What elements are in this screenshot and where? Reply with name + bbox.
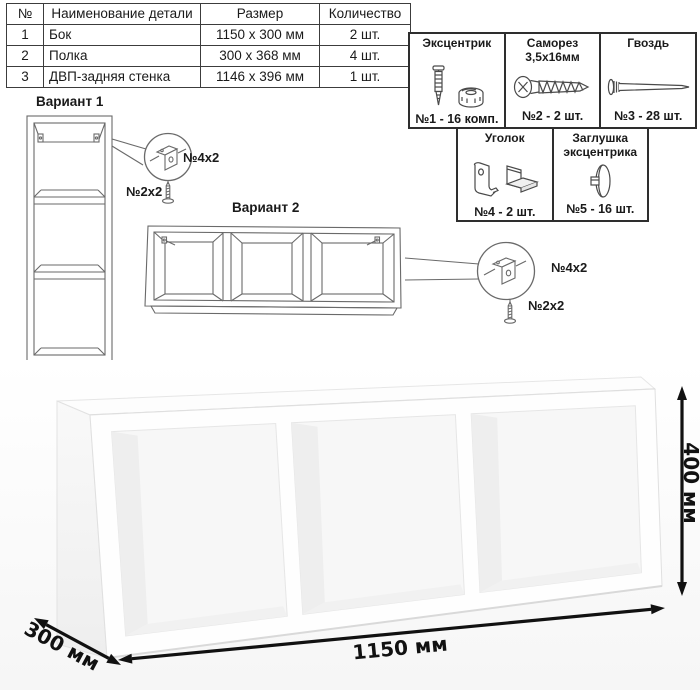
hardware-title: Эксцентрик (420, 34, 493, 64)
hardware-title: Гвоздь (625, 34, 671, 64)
nail-icon (601, 64, 695, 109)
part-name-cell: Бок (44, 25, 201, 46)
part-size-cell: 300 x 368 мм (201, 46, 320, 67)
variant1-bracket-qty-label: №4х2 (183, 150, 219, 165)
assembly-instruction-sheet: № Наименование детали Размер Количество … (0, 0, 700, 690)
col-header-num: № (7, 4, 44, 25)
variant2-bracket-qty-label: №4х2 (551, 260, 587, 275)
table-row: 2 Полка 300 x 368 мм 4 шт. (7, 46, 411, 67)
part-name-cell: ДВП-задняя стенка (44, 67, 201, 88)
part-number-cell: 3 (7, 67, 44, 88)
eccentric-cam-icon (410, 64, 504, 112)
hardware-title: Уголок (483, 129, 527, 159)
variant2-screw-qty-label: №2х2 (528, 298, 564, 313)
hardware-title: Заглушка эксцентрика (554, 129, 648, 160)
hardware-item-nail: Гвоздь №3 - 28 шт. (599, 32, 697, 129)
hardware-item-eccentric: Эксцентрик №1 - 16 (408, 32, 506, 129)
col-header-size: Размер (201, 4, 320, 25)
cam-cover-icon (554, 160, 648, 202)
part-qty-cell: 2 шт. (320, 25, 411, 46)
hardware-title: Саморез 3,5х16мм (506, 34, 600, 65)
hardware-item-corner-bracket: Уголок №4 - 2 шт. (456, 127, 554, 222)
col-header-name: Наименование детали (44, 4, 201, 25)
hardware-box-row-2: Уголок №4 - 2 шт. Заглушка эксцентрика (456, 127, 649, 222)
variant2-label: Вариант 2 (232, 200, 299, 215)
corner-bracket-icon (458, 159, 552, 205)
parts-table-header-row: № Наименование детали Размер Количество (7, 4, 411, 25)
variant1-screw-qty-label: №2х2 (126, 184, 162, 199)
part-qty-cell: 1 шт. (320, 67, 411, 88)
col-header-qty: Количество (320, 4, 411, 25)
part-qty-cell: 4 шт. (320, 46, 411, 67)
hardware-item-screw: Саморез 3,5х16мм №2 - 2 шт. (504, 32, 602, 129)
variant2-drawing (135, 218, 615, 333)
part-name-cell: Полка (44, 46, 201, 67)
part-size-cell: 1146 x 396 мм (201, 67, 320, 88)
hardware-box-row-1: Эксцентрик №1 - 16 (408, 32, 697, 129)
table-row: 3 ДВП-задняя стенка 1146 x 396 мм 1 шт. (7, 67, 411, 88)
part-number-cell: 2 (7, 46, 44, 67)
hardware-count-label: №2 - 2 шт. (522, 109, 583, 127)
height-dimension-label: 400 мм (679, 442, 700, 524)
part-size-cell: 1150 x 300 мм (201, 25, 320, 46)
part-number-cell: 1 (7, 25, 44, 46)
hardware-count-label: №3 - 28 шт. (614, 109, 682, 127)
variant1-label: Вариант 1 (36, 94, 103, 109)
screw-icon (506, 65, 600, 109)
table-row: 1 Бок 1150 x 300 мм 2 шт. (7, 25, 411, 46)
parts-table: № Наименование детали Размер Количество … (6, 3, 411, 88)
hardware-item-cam-cover: Заглушка эксцентрика №5 - 16 шт. (552, 127, 650, 222)
